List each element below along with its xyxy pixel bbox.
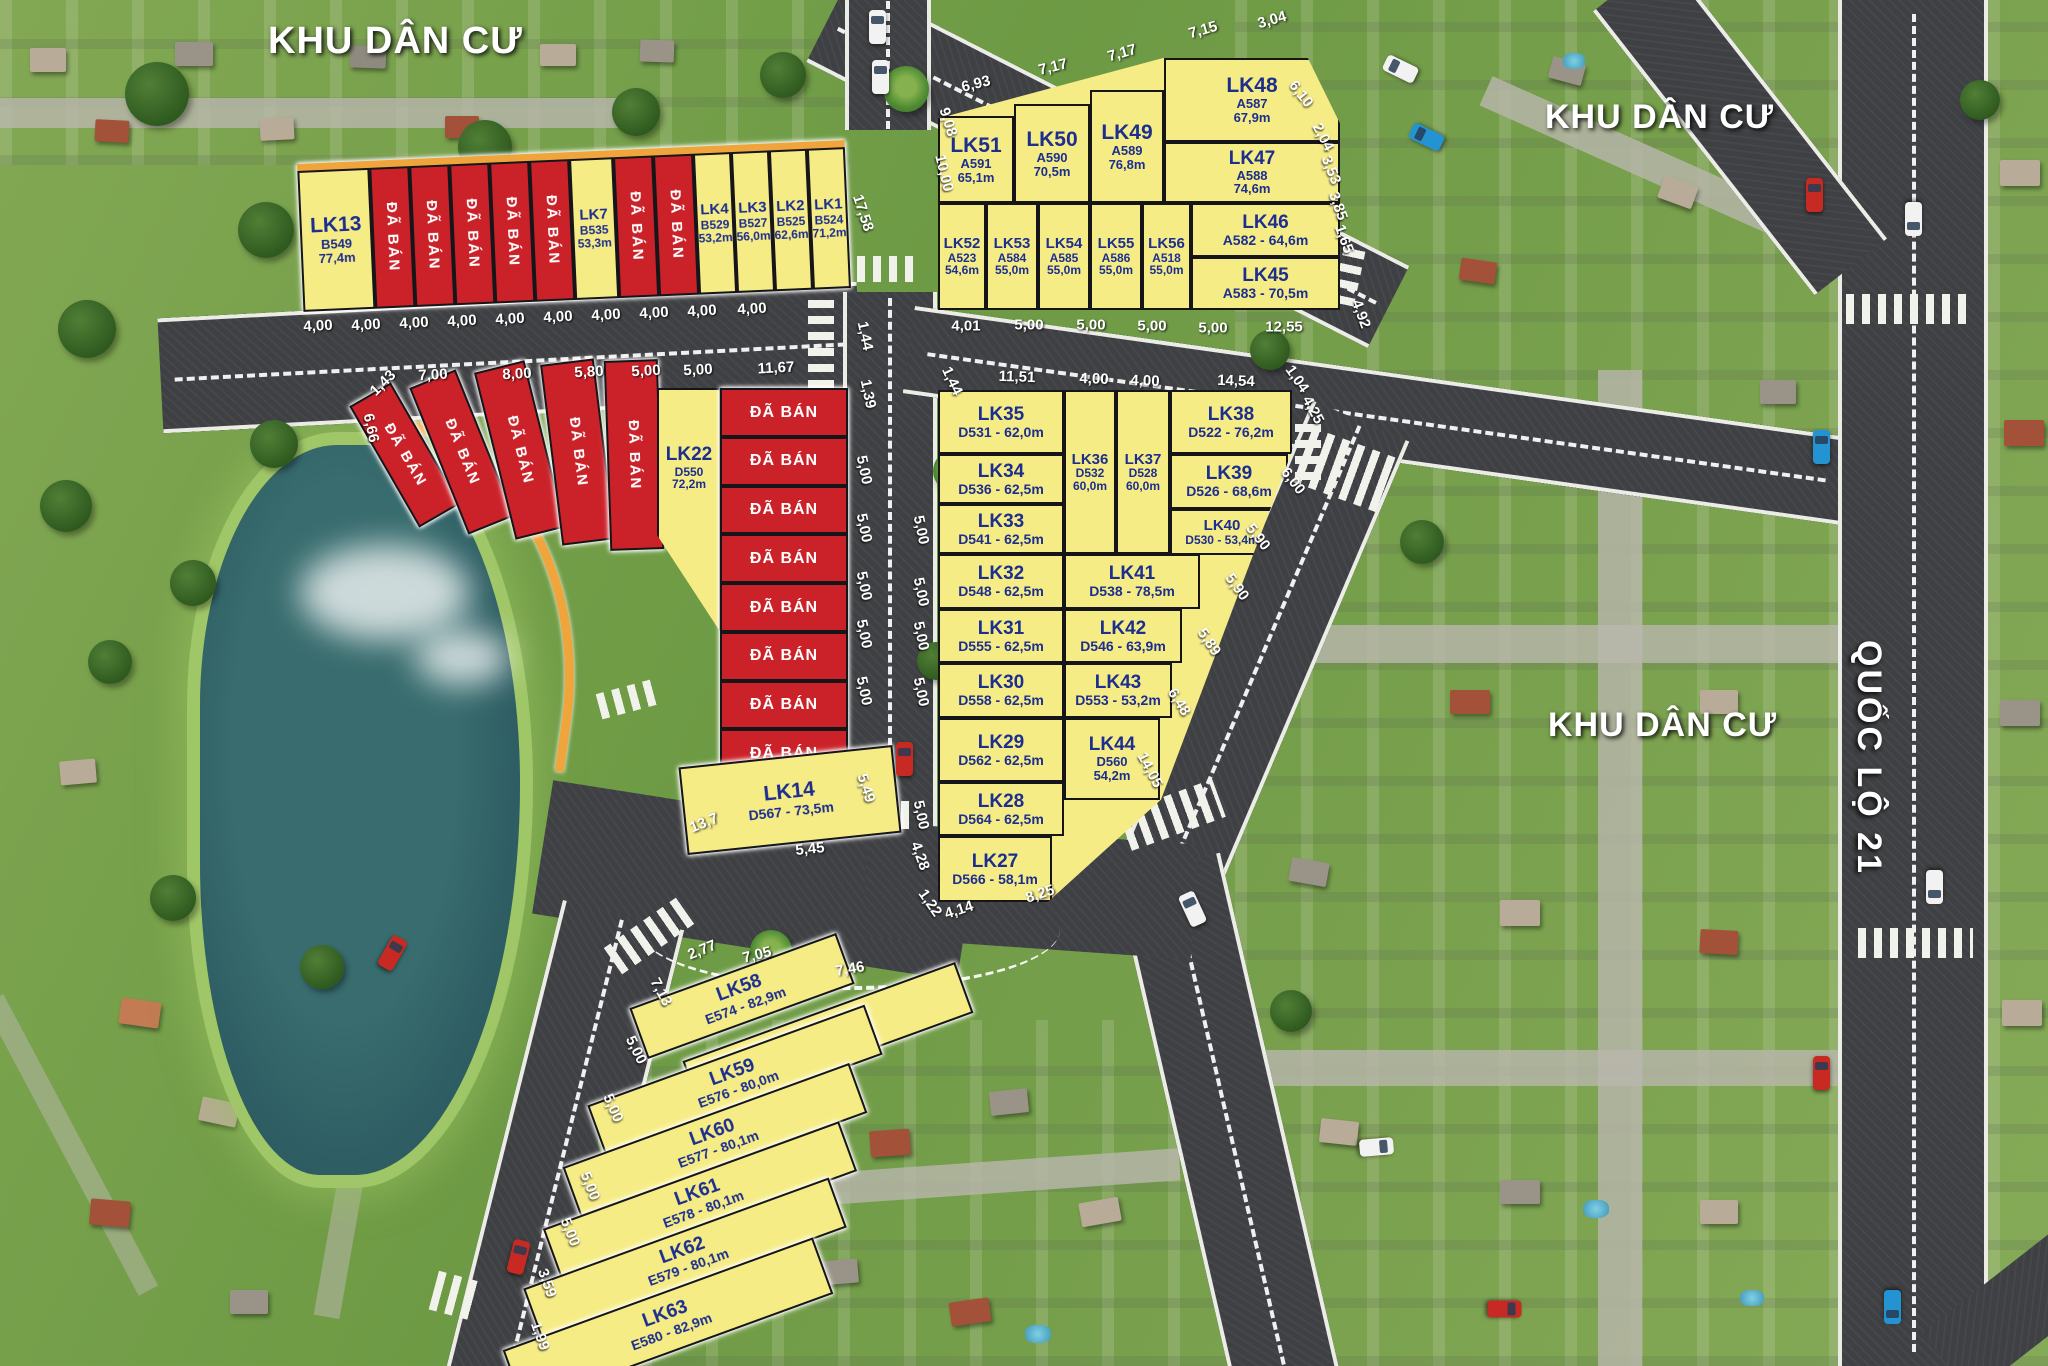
tree	[58, 300, 116, 358]
plot-lk33: LK33D541 - 62,5m	[938, 504, 1064, 554]
tree	[612, 88, 660, 136]
house	[30, 48, 66, 72]
tree	[238, 202, 294, 258]
dim-label: 12,55	[1265, 319, 1303, 336]
plot-lk32: LK32D548 - 62,5m	[938, 554, 1064, 609]
sold-plot: ĐÃ BÁN	[720, 583, 848, 632]
plot-lk4: LK4 B529 53,2m	[693, 152, 737, 295]
house	[1700, 1200, 1738, 1224]
crosswalk	[1858, 928, 1973, 958]
plot-lk22: LK22 D550 72,2m	[657, 388, 721, 633]
car-icon	[1806, 178, 1823, 212]
tree	[40, 480, 92, 532]
house	[989, 1088, 1029, 1116]
dim-label: 4,00	[543, 308, 573, 327]
sold-plot: ĐÃ BÁN	[720, 486, 848, 535]
dim-label: 4,01	[951, 318, 980, 335]
house	[230, 1290, 268, 1314]
car-icon	[1813, 430, 1830, 464]
sold-plot: ĐÃ BÁN	[720, 632, 848, 681]
plot-lk1: LK1 B524 71,2m	[807, 147, 851, 290]
pool	[1740, 1290, 1764, 1306]
tree	[150, 875, 196, 921]
house	[94, 119, 129, 143]
car-icon	[1905, 202, 1922, 236]
tree	[1400, 520, 1444, 564]
sold-column: ĐÃ BÁN ĐÃ BÁN ĐÃ BÁN ĐÃ BÁN ĐÃ BÁN ĐÃ BÁ…	[720, 388, 848, 778]
house	[869, 1129, 911, 1158]
sold-plot: ĐÃ BÁN	[529, 159, 575, 302]
house	[259, 117, 294, 141]
dim-label: 14,54	[1217, 372, 1255, 390]
dim-label: 7,15	[1187, 18, 1220, 42]
car-icon	[872, 60, 889, 94]
residential-area-label: KHU DÂN CƯ	[1548, 706, 1777, 745]
plot-lk54: LK54 A585 55,0m	[1038, 203, 1090, 310]
dim-label: 4,00	[639, 304, 669, 323]
plot-lk35: LK35D531 - 62,0m	[938, 390, 1064, 454]
house	[59, 758, 97, 785]
house	[1500, 900, 1540, 926]
plot-lk56: LK56 A518 55,0m	[1142, 203, 1191, 310]
dim-label: 5,00	[1076, 317, 1105, 334]
block-b: LK13 B549 77,4m ĐÃ BÁN ĐÃ BÁN ĐÃ BÁN ĐÃ …	[297, 140, 851, 312]
plot-lk52: LK52 A523 54,6m	[938, 203, 986, 310]
car-icon	[896, 742, 913, 776]
plot-lk45: LK45 A583 - 70,5m	[1191, 257, 1340, 310]
dim-label: 4,00	[495, 310, 525, 329]
plot-lk29: LK29D562 - 62,5m	[938, 718, 1064, 782]
house	[1450, 690, 1490, 714]
sold-plot: ĐÃ BÁN	[604, 359, 665, 551]
sold-plot: ĐÃ BÁN	[409, 164, 455, 307]
plot-lk3: LK3 B527 56,0m	[731, 150, 775, 293]
dim-label: 5,80	[574, 363, 604, 382]
car-icon	[1488, 1301, 1522, 1318]
pool	[1025, 1325, 1051, 1343]
plot-area: 71,2m	[812, 226, 847, 240]
plot-lk2: LK2 B525 62,6m	[769, 149, 813, 292]
dim-label: 8,00	[502, 365, 532, 384]
car-icon	[869, 10, 886, 44]
car-icon	[1359, 1137, 1394, 1157]
plot-lk7: LK7 B535 53,3m	[569, 157, 619, 300]
dim-label: 5,00	[1198, 320, 1227, 337]
tree	[1270, 990, 1312, 1032]
suburb-texture-far-right	[1988, 0, 2048, 1366]
plot-lk30: LK30D558 - 62,5m	[938, 663, 1064, 718]
tree	[250, 420, 298, 468]
house	[198, 1096, 240, 1127]
dim-label: 4,00	[737, 300, 767, 319]
dim-label: 11,51	[998, 368, 1035, 386]
plot-lk47: LK47 A588 74,6m	[1164, 142, 1340, 203]
plot-lk53: LK53 A584 55,0m	[986, 203, 1038, 310]
plot-area: 62,6m	[774, 227, 809, 241]
crosswalk	[808, 300, 834, 388]
sold-plot: ĐÃ BÁN	[489, 161, 535, 304]
dim-label: 5,00	[683, 361, 713, 380]
house	[2002, 1000, 2042, 1026]
real-estate-master-plan: { "titles": { "residential_area_1": "KHU…	[0, 0, 2048, 1366]
dim-label: 4,00	[351, 316, 381, 335]
dim-label: 4,00	[591, 306, 621, 325]
house	[540, 44, 576, 66]
plot-lk50: LK50 A590 70,5m	[1014, 104, 1090, 203]
house	[1319, 1118, 1359, 1146]
dim-label: 5,00	[1137, 318, 1166, 335]
tree	[760, 52, 806, 98]
crosswalk	[857, 256, 921, 282]
sold-plot: ĐÃ BÁN	[653, 154, 699, 297]
plot-lk43: LK43D553 - 53,2m	[1064, 663, 1172, 718]
sold-plot: ĐÃ BÁN	[720, 388, 848, 437]
tree	[170, 560, 216, 606]
tree	[125, 62, 189, 126]
house	[1500, 1180, 1540, 1204]
house	[640, 39, 675, 62]
plot-area: 53,2m	[698, 231, 733, 245]
plot-lk34: LK34D536 - 62,5m	[938, 454, 1064, 504]
house	[2004, 420, 2044, 446]
plot-area: 53,3m	[577, 236, 612, 250]
tree	[300, 945, 344, 989]
plot-lk49: LK49 A589 76,8m	[1090, 90, 1164, 203]
residential-area-label: KHU DÂN CƯ	[1545, 98, 1774, 137]
dim-label: 4,00	[447, 312, 477, 331]
sold-plot: ĐÃ BÁN	[720, 681, 848, 730]
plot-area: 56,0m	[736, 229, 771, 243]
sold-plot: ĐÃ BÁN	[720, 534, 848, 583]
plot-lk28: LK28D564 - 62,5m	[938, 782, 1064, 836]
pool	[1563, 53, 1585, 69]
dim-label: 4,00	[399, 314, 429, 333]
residential-area-label: KHU DÂN CƯ	[268, 20, 523, 63]
dim-label: 5,00	[631, 362, 661, 381]
house	[1760, 380, 1796, 404]
house	[2000, 160, 2040, 186]
crosswalk	[596, 679, 661, 720]
house	[1699, 929, 1738, 955]
tree	[1250, 330, 1290, 370]
pool	[1583, 1200, 1609, 1218]
car-icon	[1884, 1290, 1901, 1324]
tree	[1960, 80, 2000, 120]
plot-lk42: LK42D546 - 63,9m	[1064, 609, 1182, 663]
plot-lk46: LK46 A582 - 64,6m	[1191, 203, 1340, 257]
house	[175, 42, 213, 66]
plot-lk39: LK39D526 - 68,6m	[1170, 454, 1288, 509]
plot-lk13: LK13 B549 77,4m	[297, 168, 375, 312]
dim-label: 7,17	[1037, 55, 1069, 79]
house	[118, 997, 161, 1028]
plot-lk55: LK55 A586 55,0m	[1090, 203, 1142, 310]
dim-label: 17,58	[849, 193, 877, 234]
plot-id: LK13	[310, 213, 362, 238]
dim-label: 4,00	[1130, 372, 1160, 390]
car-icon	[1926, 870, 1943, 904]
sold-plot: ĐÃ BÁN	[720, 437, 848, 486]
dim-label: 5,00	[1014, 317, 1043, 334]
dim-label: 4,00	[1079, 370, 1109, 388]
house	[2000, 700, 2040, 726]
plot-lk31: LK31D555 - 62,5m	[938, 609, 1064, 663]
plot-lk38: LK38D522 - 76,2m	[1170, 390, 1292, 454]
dim-label: 7,00	[418, 366, 448, 385]
sold-plot: ĐÃ BÁN	[369, 166, 415, 309]
plot-lk41: LK41D538 - 78,5m	[1064, 554, 1200, 609]
dim-label: 4,00	[303, 317, 333, 336]
highway-label: QUỐC LỘ 21	[1849, 640, 1888, 876]
plot-lk36: LK36D53260,0m	[1064, 390, 1116, 554]
sold-plot: ĐÃ BÁN	[613, 155, 659, 298]
plot-lk37: LK37D52860,0m	[1116, 390, 1170, 554]
sold-plot: ĐÃ BÁN	[449, 163, 495, 306]
dim-label: 7,17	[1106, 41, 1139, 65]
country-lane	[0, 994, 158, 1296]
crosswalk	[1846, 294, 1966, 324]
plot-area: 77,4m	[318, 250, 355, 266]
tree	[88, 640, 132, 684]
dim-label: 4,00	[687, 302, 717, 321]
house	[89, 1198, 131, 1227]
dim-label: 11,67	[757, 359, 795, 378]
palm-tree	[883, 66, 929, 112]
car-icon	[1813, 1056, 1830, 1090]
dim-label: 5,45	[795, 839, 826, 859]
neighborhood-street	[1235, 1050, 1840, 1086]
